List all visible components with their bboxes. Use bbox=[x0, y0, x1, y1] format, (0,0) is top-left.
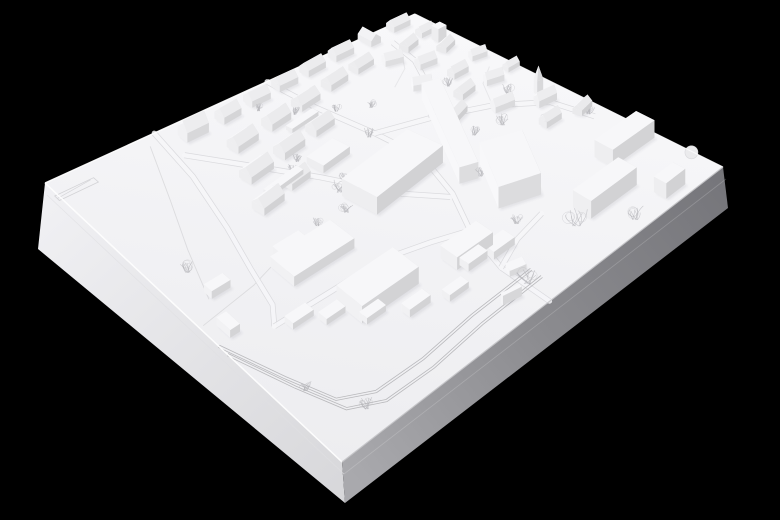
model-photo-svg bbox=[0, 0, 780, 520]
photo-canvas bbox=[0, 0, 780, 520]
edge-pad-detail bbox=[685, 146, 698, 159]
